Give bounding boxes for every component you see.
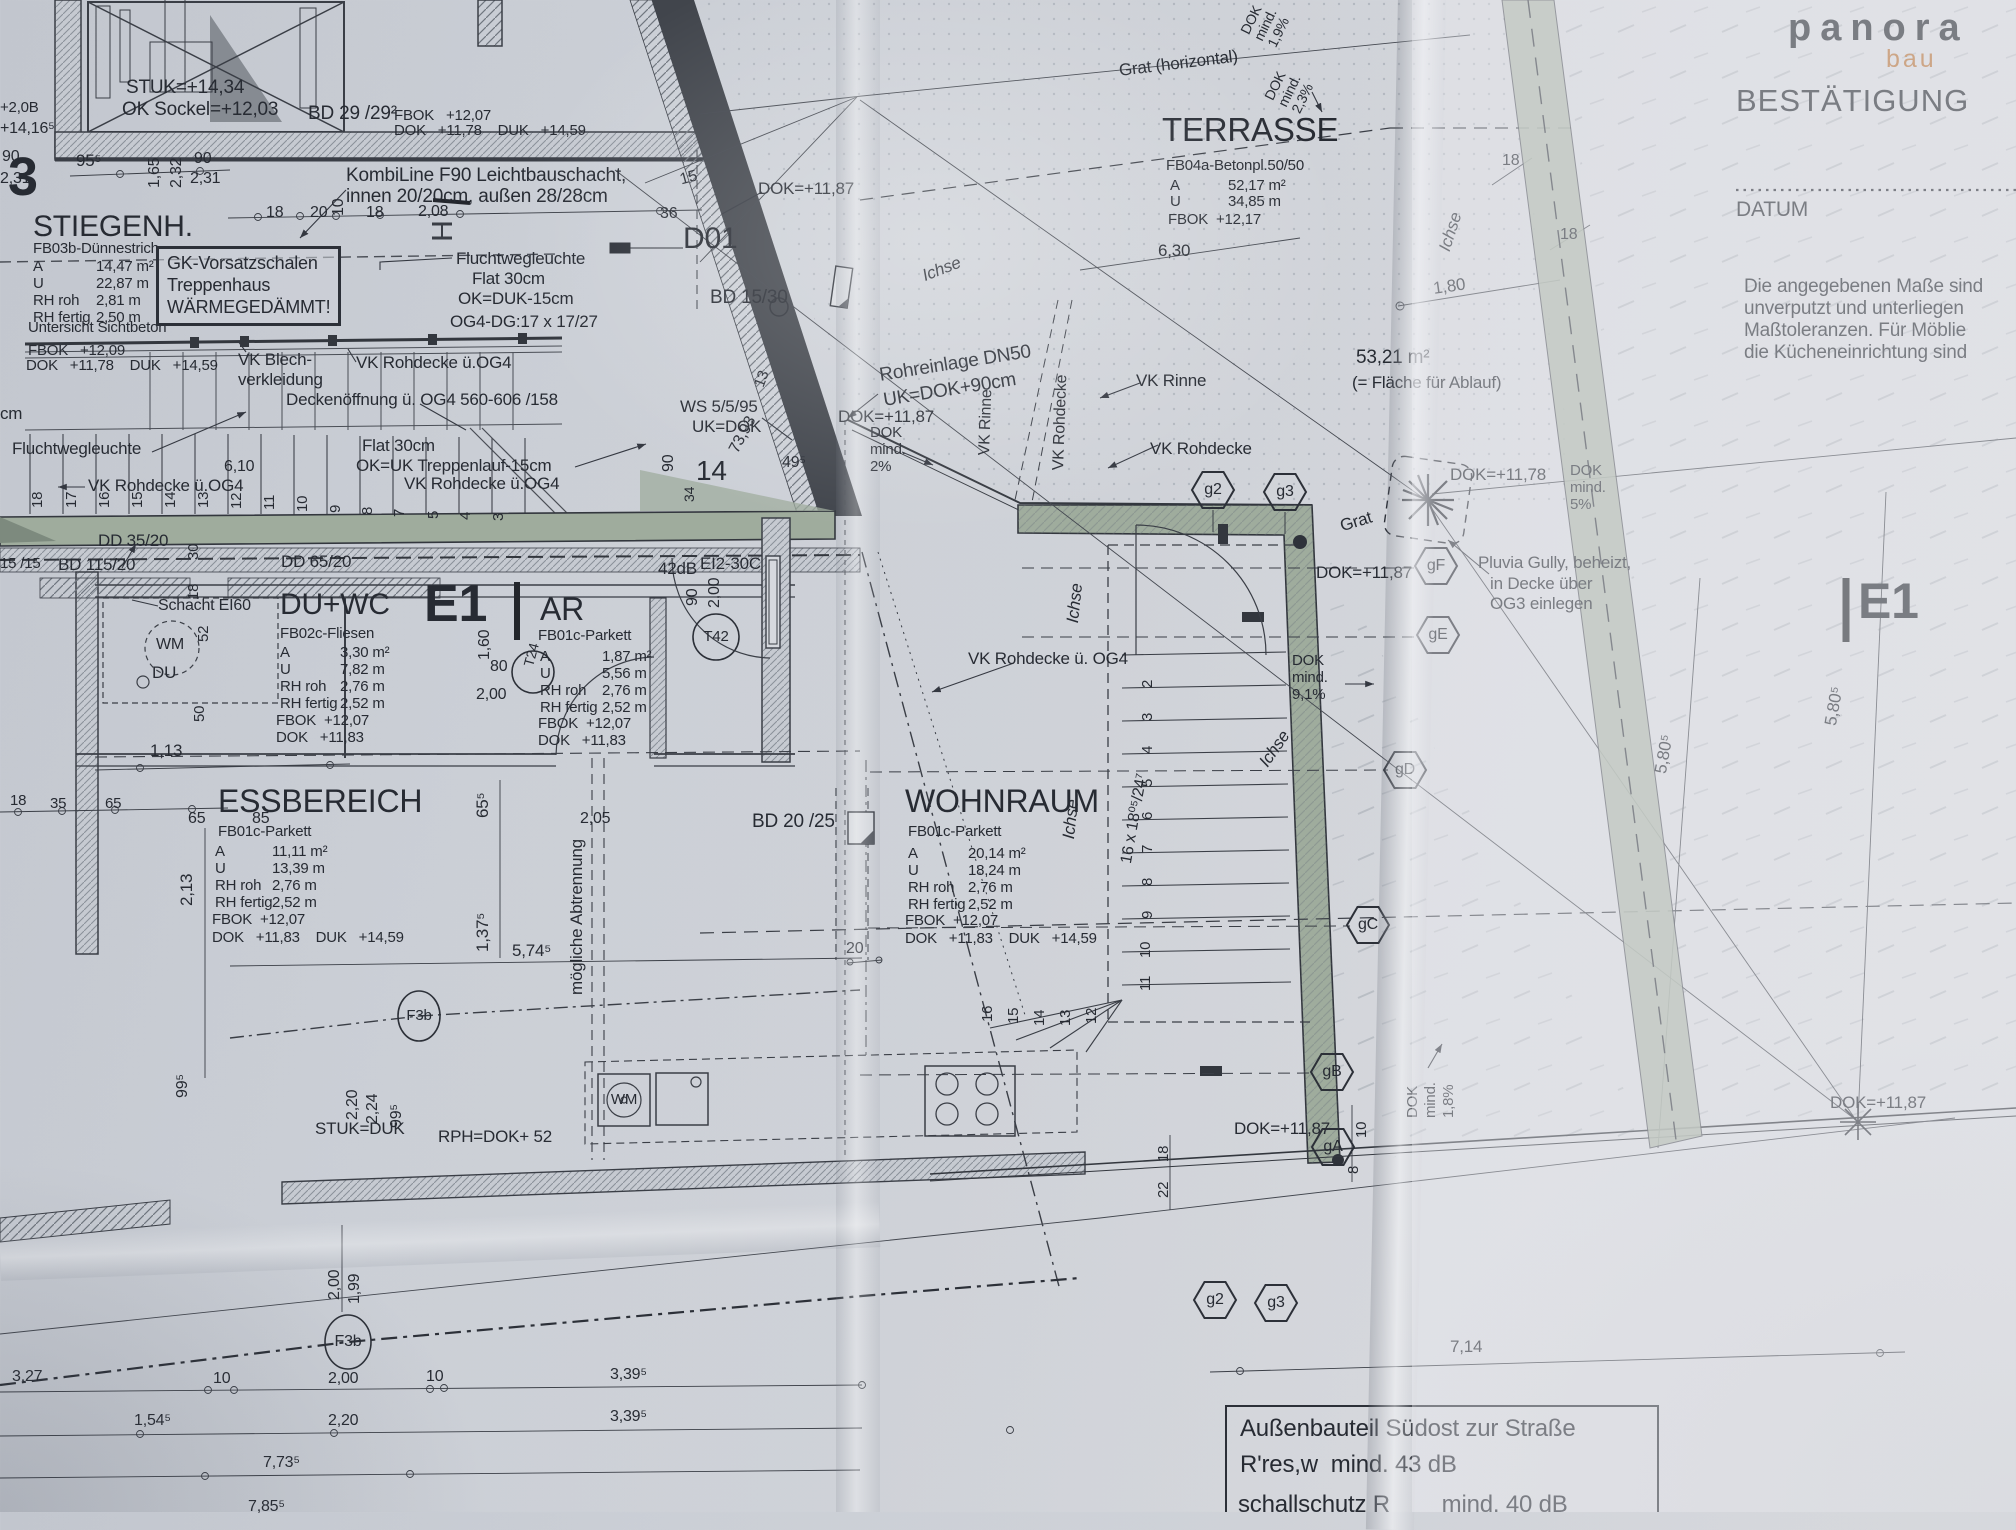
dim-10-bot1: 10 [213,1370,230,1388]
duwc-floor: FB02c-Fliesen [280,626,374,643]
dim-1515: 15 /15 [0,556,41,573]
dim-34: 34 [682,487,697,502]
rtread-6: 6 [1140,812,1157,820]
fluchtwegleuchte-2: Fluchtwegleuchte [12,440,141,459]
deckenoeffnung: Deckenöffnung ü. OG4 560-606 /158 [286,391,558,410]
grat-2: Grat [1338,509,1374,536]
level-1416: +14,16⁵ [0,120,55,138]
dim-10-bot2: 10 [426,1368,443,1386]
du-label: DU [152,664,176,683]
rtread-2: 2 [1140,680,1157,688]
level-sockel: OK Sockel=+12,03 [122,100,278,121]
tread-14: 14 [163,492,180,508]
dok-mind-91: DOK mind. 9,1% [1292,652,1328,703]
rtread-4: 4 [1140,746,1157,754]
titleblock-note: Die angegebenen Maße sind unverputzt und… [1744,276,1983,364]
vk-rohdecke-h: VK Rohdecke [1150,440,1252,459]
dim-8-right: 8 [1346,1166,1363,1174]
rtread-7: 7 [1140,845,1157,853]
marker-ga: gA [1323,1138,1342,1156]
wall-42db: 42dB [658,560,697,579]
ichse-3: Ichse [1256,728,1294,771]
rtread-5: 5 [1140,779,1157,787]
dim-5745: 5,74⁵ [512,942,551,961]
dim-200-rot: 2,00 [326,1270,344,1300]
wohn-floor: FB01c-Parkett [908,824,1001,841]
room-title-terrasse: TERRASSE [1162,112,1338,148]
marker-gc: gC [1358,916,1378,934]
rtread-14: 14 [1032,1010,1049,1026]
dim-220-rot: 2,20 [344,1090,362,1120]
vk-rohdecke-og4: VK Rohdecke ü. OG4 [968,650,1128,669]
pluvia-3: OG3 einlegen [1490,595,1593,614]
dim-90-stair: 90 [660,455,678,472]
dd6520: DD 65/20 [281,553,351,572]
tread-15: 15 [130,492,147,508]
dim-995-a: 99⁵ [174,1074,192,1098]
tread-16: 16 [97,492,114,508]
ar-dok: DOK +11,83 [538,733,626,750]
row-dok-2: DOK +11,78 DUK +14,59 [26,358,218,375]
dok-1187-top: DOK=+11,87 [758,180,854,199]
rtread-11: 11 [1138,976,1155,991]
stiegenhaus-vals: 14,47 m² 22,87 m 2,81 m 2,50 m [96,258,154,326]
ichse-4: Ichse [1060,799,1083,840]
uk-dok: UK=DOK [692,418,761,437]
marker-gf: gF [1427,557,1445,575]
row-dok-top: DOK +11,78 DUK +14,59 [394,123,586,140]
acoustic-line-2: R'res,w mind. 43 dB [1240,1452,1457,1478]
tread-3: 3 [491,513,508,521]
ar-floor: FB01c-Parkett [538,628,631,645]
schacht-ei60: Schacht EI60 [158,597,251,615]
kombiline-2: innen 20/20cm, außen 28/28cm [346,187,608,208]
dim-90-b: 90 [194,150,211,168]
dim-955: 95⁵ [76,152,101,171]
vk-rinne-h: VK Rinne [1136,372,1206,391]
door-t42: T42 [703,629,728,646]
dok-1178: DOK=+11,78 [1450,466,1546,485]
dim-3395-a: 3,39⁵ [610,1366,647,1384]
level-partial: +2,0B [0,100,39,117]
rph-dok: RPH=DOK+ 52 [438,1128,552,1147]
vk-rohdecke-2: VK Rohdecke ü.OG4 [404,475,559,494]
marker-g3-bottom: g3 [1267,1294,1284,1312]
dim-630: 6,30 [1158,242,1190,261]
marker-f3b-1: F3b [406,1008,431,1025]
dok-mind-23: DOK mind. 2,3% [1262,66,1317,116]
wohn-vals: 20,14 m² 18,24 m 2,76 m 2,52 m [968,845,1026,913]
rtread-15: 15 [1006,1008,1023,1024]
label-e1-right: E1 [1858,574,1919,629]
ichse-2: Ichse [1436,210,1466,253]
marker-g2-bottom: g2 [1206,1291,1223,1309]
dim-495: 49⁵ [782,454,806,472]
beam-bd2929: BD 29 /29² [308,104,397,125]
dim-1545: 1,54⁵ [134,1412,171,1430]
rtread-16: 16 [980,1006,997,1022]
dim-200-t42: 2,00 [706,578,724,608]
tread-9: 9 [328,505,345,513]
terr-keys: A U [1170,178,1181,210]
marker-gb: gB [1322,1063,1341,1081]
room-title-stiegenhaus: STIEGENH. [33,210,193,243]
ar-fbok: FBOK +12,07 [538,716,631,733]
dim-65-row2: 65 [105,796,121,813]
tread-17: 17 [64,492,81,508]
dim-10-rot: 10 [330,199,348,216]
terr-vals: 52,17 m² 34,85 m [1228,178,1286,210]
area-5321: 53,21 m² [1356,348,1429,369]
dim-113: 1,13 [150,742,182,761]
dim-165: 1,65 [146,158,164,188]
tread-10: 10 [295,496,312,512]
wohn-fbok: FBOK +12,07 [905,913,998,930]
dim-5805-b: 5,80⁵ [1822,685,1847,727]
ichse-1: Ichse [920,254,964,286]
dim-220-bot: 2,20 [328,1412,358,1430]
pluvia-2: in Decke über [1490,575,1592,594]
dok-1187-ga: DOK=+11,87 [1234,1120,1330,1139]
tread-11: 11 [262,495,279,510]
rtread-12: 12 [1084,1008,1101,1024]
wm-schacht: WM [156,636,184,654]
floor-plan-photo: STUK=+14,34OK Sockel=+12,03BD 29 /29²FBO… [0,0,2016,1512]
dim-655: 65⁵ [474,793,493,818]
dim-208: 2,08 [418,203,448,221]
terr-fbok: FBOK +12,17 [1168,212,1261,229]
fluchtwegleuchte-1: Fluchtwegleuchte [456,250,585,269]
rtread-3: 3 [1140,713,1157,721]
dim-15: 15 [678,167,699,188]
dim-1375: 1,37⁵ [474,913,493,952]
ess-dok: DOK +11,83 DUK +14,59 [212,930,404,947]
acoustic-line-3: schallschutz R mind. 40 dB [1238,1492,1568,1518]
dim-180: 1,80 [1432,276,1467,299]
rtread-10: 10 [1138,942,1155,958]
logo-panorama: panora [1788,8,1969,50]
tread-18: 18 [30,492,47,508]
cm-partial: cm [0,405,22,424]
dim-50: 50 [192,706,209,722]
dok-mind-19: DOK mind. 1,9% [1238,0,1293,50]
dim-200-duwc: 2,00 [476,686,506,704]
room-title-duwc: DU+WC [280,588,390,621]
dim-18-f: 18 [1156,1146,1173,1162]
ess-vals: 11,11 m² 13,39 m 2,76 m 2,52 m [272,843,327,911]
dim-52: 52 [196,626,213,642]
vk-blech: VK Blech- verkleidung [238,350,323,390]
dim-13-rot: 13 [752,369,773,390]
stuk-duk: STUK=DUK [315,1120,405,1139]
pluvia-1: Pluvia Gully, beheizt, [1478,554,1631,573]
flat30-2a: Flat 30cm [362,437,435,456]
ess-fbok: FBOK +12,07 [212,912,305,929]
level-stuk: STUK=+14,34 [126,78,244,99]
dim-20-a: 20 [310,204,327,222]
dim-200-bot: 2,00 [328,1370,358,1388]
flat30-1b: OK=DUK-15cm [458,290,573,309]
tread-4: 4 [458,512,475,520]
logo-bau: bau [1886,46,1937,74]
dim-231-b: 2,31 [190,170,220,188]
gk-note: GK-Vorsatzschalen Treppenhaus WÄRMEGEDÄM… [156,246,341,326]
kombiline-1: KombiLine F90 Leichtbauschacht, [346,166,626,187]
beam-bd2025: BD 20 /25 [752,812,835,833]
ws-5595: WS 5/5/95 [680,398,758,417]
rtread-9: 9 [1140,911,1157,919]
dim-205: 2,05 [580,810,610,828]
dim-65-row: 65 [188,810,205,828]
dim-80: 80 [490,658,507,676]
ess-keys: A U RH roh RH fertig [215,843,272,911]
marker-f3b-2: F3b [335,1333,362,1351]
grat-horizontal: Grat (horizontal) [1118,47,1239,80]
duwc-vals: 3,30 m² 7,82 m 2,76 m 2,52 m [340,644,389,712]
vk-rohdecke-1: VK Rohdecke ü.OG4 [356,354,511,373]
dim-10-right: 10 [1354,1122,1371,1138]
dim-30-rot: 30 [186,544,203,560]
room-title-essbereich: ESSBEREICH [218,784,422,819]
beam-bd1530: BD 15/30 [710,288,788,309]
dim-18-d: 18 [1502,152,1519,170]
tread-13: 13 [196,492,213,508]
stiegenhaus-keys: A U RH roh RH fertig [33,258,90,326]
dim-7855: 7,85⁵ [248,1498,285,1516]
dim-90-t42: 90 [684,589,702,606]
tread-8: 8 [360,507,377,515]
dim-18-row: 18 [10,793,26,810]
marker-ge: gE [1428,626,1447,644]
dok-1187-far: DOK=+11,87 [1830,1094,1926,1113]
dim-610: 6,10 [224,458,254,476]
big-14: 14 [696,456,727,487]
dok-1187-right: DOK=+11,87 [1316,564,1412,583]
wm-kitchen: WM [611,1092,637,1109]
dim-36: 36 [660,205,677,223]
big-digit-3: 3 [8,148,38,207]
vk-rohdecke-rot: VK Rohdecke [1050,374,1071,470]
dim-35-row: 35 [50,796,66,813]
marker-gd: gD [1395,761,1415,779]
tread-5: 5 [426,511,443,519]
room-title-e1: E1 [424,576,487,633]
wall-ei230c: EI2-30C [700,555,761,574]
duwc-fbok: FBOK +12,07 [276,713,369,730]
ar-keys: A U RH roh RH fertig [540,648,597,716]
dim-327: 3,27 [12,1368,42,1386]
dim-18-b: 18 [366,204,383,222]
rtread-13: 13 [1058,1010,1075,1026]
ess-floor: FB01c-Parkett [218,824,311,841]
dok-mind-18: DOK mind. 1,8% [1404,1082,1458,1118]
dim-213: 2,13 [178,874,197,906]
duwc-dok: DOK +11,83 [276,730,364,747]
dd3520: DD 35/20 [98,532,168,551]
flaeche-ablauf: (= Fläche für Ablauf) [1352,374,1501,393]
duwc-keys: A U RH roh RH fertig [280,644,337,712]
dim-20-wohn: 20 [846,940,863,958]
flat30-1a: Flat 30cm [472,270,545,289]
dim-714: 7,14 [1450,1338,1482,1357]
rtread-8: 8 [1140,878,1157,886]
dim-3395-b: 3,39⁵ [610,1408,647,1426]
plan-annotations: STUK=+14,34OK Sockel=+12,03BD 29 /29²FBO… [0,0,2016,1512]
vk-rinne-rot: VK Rinne [976,389,996,456]
dim-18-a: 18 [266,204,283,222]
dok-mind-5: DOK mind. 5% [1570,462,1606,513]
dim-5805-a: 5,80⁵ [1652,733,1677,775]
marker-g3-top: g3 [1276,483,1293,501]
dim-18-e: 18 [1560,226,1577,244]
door-d01: D01 [683,222,737,255]
room-title-ar: AR [540,592,584,627]
untersicht: Untersicht Sichtbeton [28,320,166,337]
moegliche-abtrennung: mögliche Abtrennung [568,839,587,995]
tread-7: 7 [392,509,409,517]
og4-dg: OG4-DG:17 x 17/27 [450,313,598,332]
stiegenhaus-floor: FB03b-Dünnestrich [33,241,159,258]
titleblock-datum: DATUM [1736,198,1808,221]
dim-232: 2,32 [168,158,186,188]
ar-vals: 1,87 m² 5,56 m 2,76 m 2,52 m [602,648,651,716]
wohn-keys: A U RH roh RH fertig [908,845,965,913]
titleblock-bestaetigung: BESTÄTIGUNG [1736,84,1969,118]
acoustic-line-1: Außenbauteil Südost zur Straße [1240,1416,1576,1442]
flat30-2b: OK=UK Treppenlauf-15cm [356,457,551,476]
marker-g2-top: g2 [1204,481,1221,499]
wohn-dok: DOK +11,83 DUK +14,59 [905,931,1097,948]
dim-199-rot: 1,99 [346,1274,364,1304]
ichse-5: Ichse [1064,583,1087,624]
terr-floor: FB04a-Betonpl.50/50 [1166,158,1304,175]
dok-mind-2: DOK mind. 2% [870,424,906,475]
dim-22: 22 [1156,1182,1173,1198]
dim-160: 1,60 [476,630,494,660]
bd11520: BD 115/20 [58,556,135,575]
tread-12: 12 [229,493,246,509]
dim-7735: 7,73⁵ [263,1454,300,1472]
